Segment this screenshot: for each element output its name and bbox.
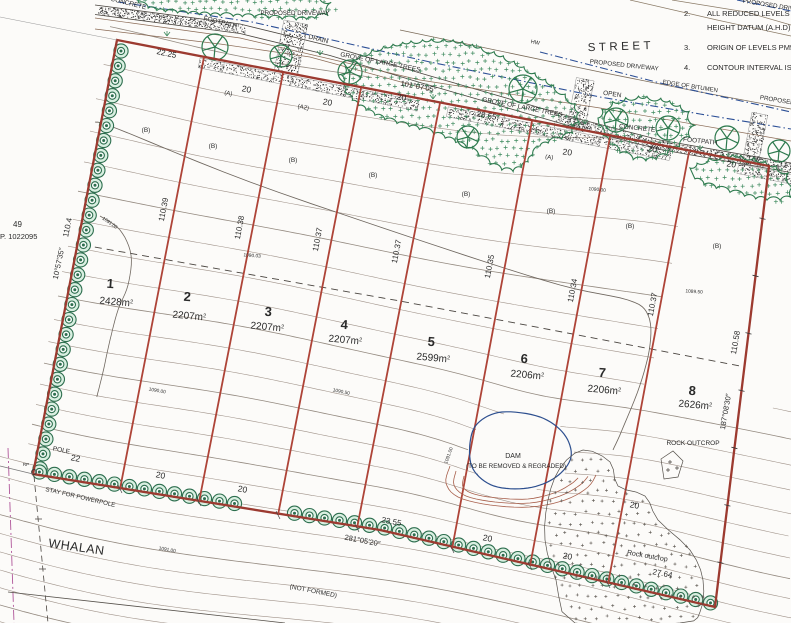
svg-text:1089.50: 1089.50 [685, 288, 703, 295]
svg-text:P. 1022095: P. 1022095 [0, 232, 37, 241]
svg-text:STREET: STREET [588, 40, 655, 54]
svg-text:ORIGIN OF LEVELS PM51734 RL 10: ORIGIN OF LEVELS PM51734 RL 1090.55 [707, 43, 791, 52]
svg-text:(B): (B) [462, 191, 471, 198]
svg-text:HEIGHT DATUM (A.H.D): HEIGHT DATUM (A.H.D) [707, 23, 791, 32]
svg-text:20: 20 [647, 143, 658, 154]
svg-text:DAM: DAM [505, 453, 521, 460]
svg-text:2: 2 [183, 289, 191, 304]
svg-text:(B): (B) [289, 157, 298, 164]
svg-text:PROPOSED DRIVEWAY: PROPOSED DRIVEWAY [260, 10, 329, 17]
svg-text:(B): (B) [142, 127, 151, 134]
svg-text:20: 20 [726, 158, 737, 169]
svg-text:3: 3 [264, 304, 272, 319]
svg-text:ROCK OUTCROP: ROCK OUTCROP [666, 440, 719, 447]
svg-text:1: 1 [106, 276, 114, 291]
svg-text:(B): (B) [547, 208, 556, 215]
svg-text:(B): (B) [369, 172, 378, 179]
svg-text:RP: RP [23, 462, 29, 467]
svg-text:20: 20 [562, 146, 573, 157]
svg-text:(B): (B) [713, 243, 722, 250]
svg-text:(B): (B) [626, 223, 635, 230]
svg-text:2.: 2. [684, 9, 690, 18]
svg-text:(TO BE REMOVED & REGRADED): (TO BE REMOVED & REGRADED) [466, 463, 566, 470]
svg-text:8: 8 [688, 383, 696, 398]
svg-text:(A): (A) [545, 154, 554, 161]
svg-text:6: 6 [520, 351, 528, 366]
svg-text:5: 5 [427, 334, 435, 349]
svg-text:3.: 3. [684, 43, 690, 52]
svg-text:49: 49 [13, 220, 22, 229]
svg-text:(B): (B) [209, 143, 218, 150]
svg-text:4.: 4. [684, 63, 690, 72]
svg-text:7: 7 [598, 365, 606, 380]
svg-text:CONTOUR INTERVAL IS 0.25 METRE: CONTOUR INTERVAL IS 0.25 METRE [707, 63, 791, 72]
